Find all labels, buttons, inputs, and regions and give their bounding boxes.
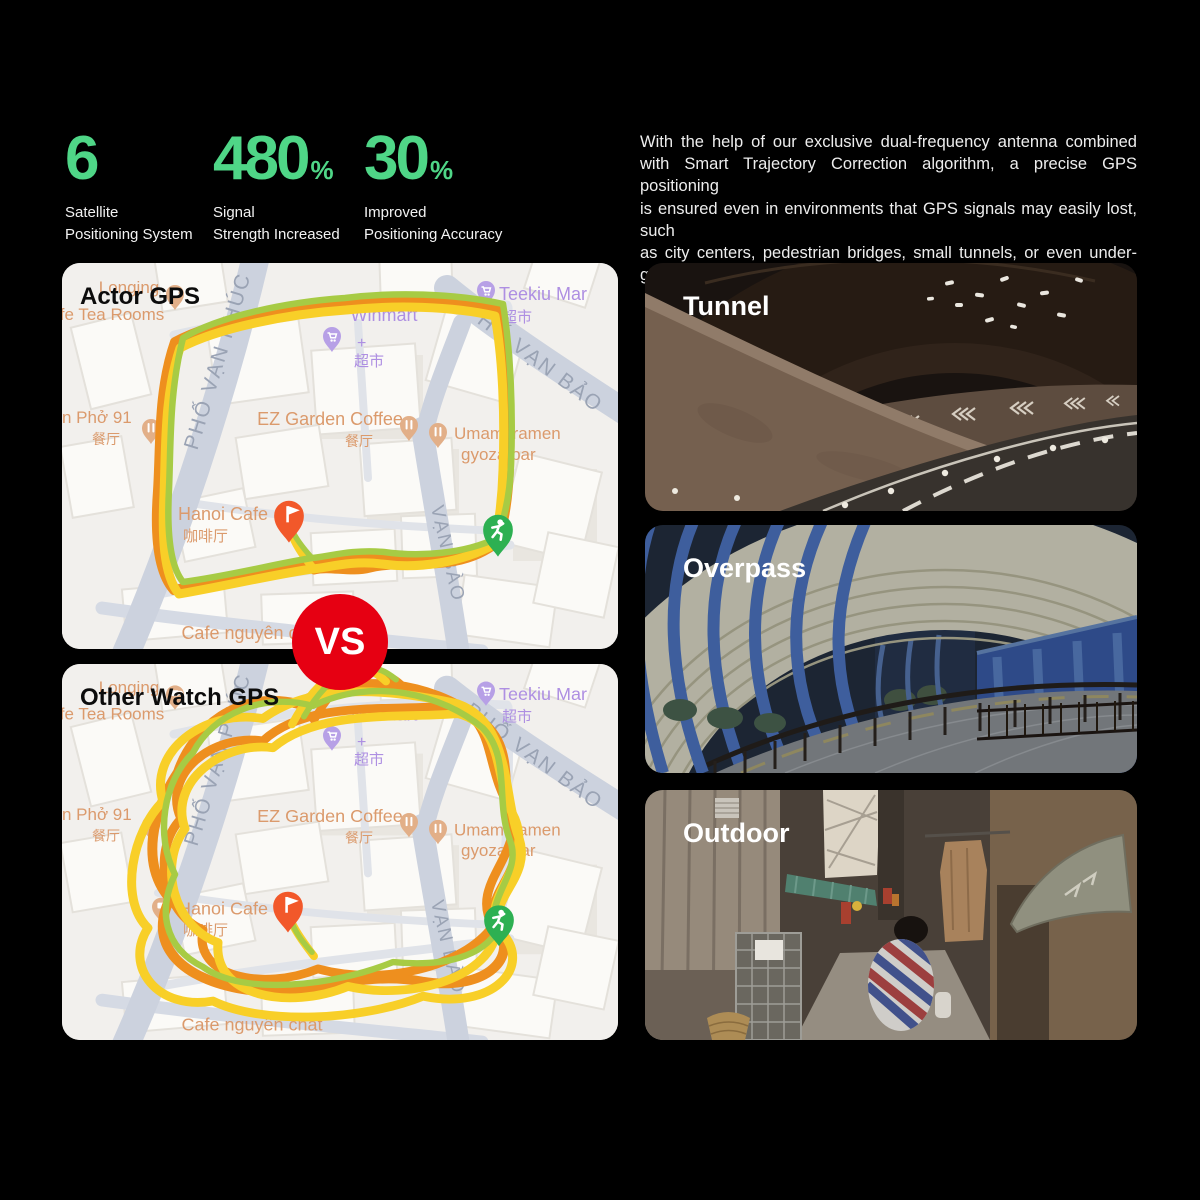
promo-page: PHỐ VẠN PHÚC PHỐ VẠN BẢO VẠN BÀO Longing… — [0, 0, 1200, 1200]
vs-badge: VS — [292, 594, 388, 690]
scene-label-outdoor: Outdoor — [683, 818, 789, 849]
intro-line: as city centers, pedestrian bridges, sma… — [640, 242, 1137, 264]
stat-value: 6 — [65, 128, 96, 190]
stat-label: Improved Positioning Accuracy — [364, 202, 502, 246]
intro-line: with Smart Trajectory Correction algorit… — [640, 153, 1137, 197]
stat-positioning-accuracy: 30 % Improved Positioning Accuracy — [364, 128, 502, 246]
stat-suffix: % — [430, 157, 453, 183]
stat-label: Satellite Positioning System — [65, 202, 193, 246]
scene-photo-overpass: Overpass — [645, 525, 1137, 773]
stat-suffix: % — [310, 157, 333, 183]
scene-photo-tunnel: Tunnel — [645, 263, 1137, 511]
map-actor-gps: Actor GPS — [62, 263, 618, 649]
map-title-actor-gps: Actor GPS — [80, 283, 200, 311]
scene-label-tunnel: Tunnel — [683, 291, 769, 322]
intro-line: With the help of our exclusive dual-freq… — [640, 131, 1137, 153]
stat-label: Signal Strength Increased — [213, 202, 340, 246]
map-title-other-watch-gps: Other Watch GPS — [80, 684, 279, 712]
stat-value: 480 — [213, 128, 307, 190]
scene-photo-outdoor: Outdoor — [645, 790, 1137, 1040]
intro-line: is ensured even in environments that GPS… — [640, 198, 1137, 242]
outdoor-hanging-shirt — [940, 840, 987, 942]
stat-satellite-systems: 6 Satellite Positioning System — [65, 128, 193, 246]
scene-label-overpass: Overpass — [683, 553, 806, 584]
map-other-watch-gps: Other Watch GPS — [62, 664, 618, 1040]
stat-signal-strength: 480 % Signal Strength Increased — [213, 128, 340, 246]
stat-value: 30 — [364, 128, 427, 190]
outdoor-basket — [707, 1012, 750, 1040]
